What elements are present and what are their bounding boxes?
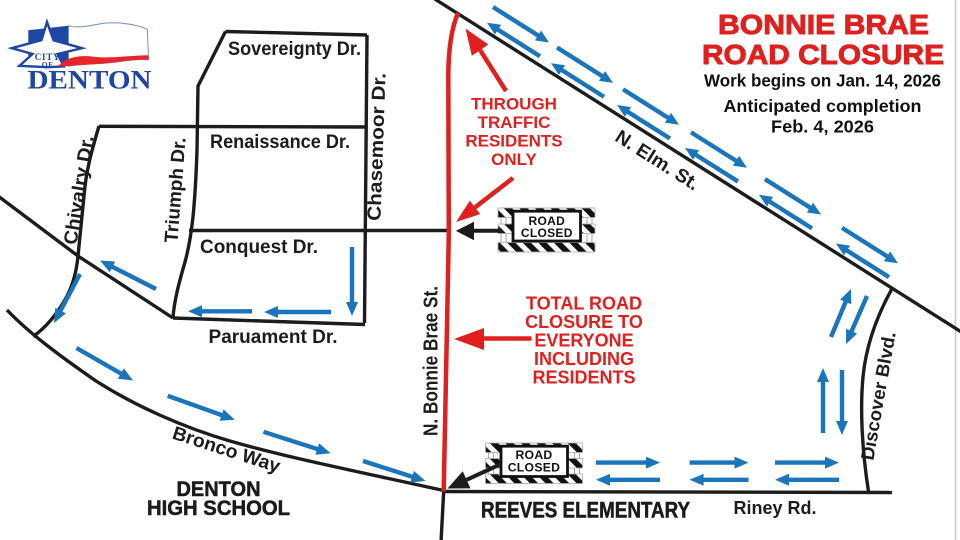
svg-text:Paruament Dr.: Paruament Dr. <box>209 327 338 348</box>
svg-text:HIGH SCHOOL: HIGH SCHOOL <box>147 496 290 520</box>
svg-text:CLOSED: CLOSED <box>508 460 561 474</box>
svg-text:EVERYONE: EVERYONE <box>534 331 633 351</box>
svg-text:Conquest Dr.: Conquest Dr. <box>200 237 318 258</box>
svg-text:Feb. 4, 2026: Feb. 4, 2026 <box>771 117 874 137</box>
svg-text:TRAFFIC: TRAFFIC <box>478 113 551 132</box>
svg-text:ONLY: ONLY <box>491 150 537 169</box>
svg-text:BONNIE BRAE: BONNIE BRAE <box>718 9 929 40</box>
svg-text:Work begins on Jan. 14, 2026: Work begins on Jan. 14, 2026 <box>704 71 941 91</box>
svg-text:CLOSURE TO: CLOSURE TO <box>525 312 643 332</box>
svg-text:RESIDENTS: RESIDENTS <box>465 132 562 151</box>
svg-text:ROAD CLOSURE: ROAD CLOSURE <box>702 39 944 70</box>
svg-text:THROUGH: THROUGH <box>471 95 557 114</box>
svg-text:Riney Rd.: Riney Rd. <box>734 498 817 518</box>
svg-text:Sovereignty Dr.: Sovereignty Dr. <box>228 39 361 60</box>
svg-text:RESIDENTS: RESIDENTS <box>532 368 635 388</box>
svg-text:Anticipated completion: Anticipated completion <box>724 96 922 116</box>
svg-text:CLOSED: CLOSED <box>521 226 573 240</box>
svg-text:TOTAL ROAD: TOTAL ROAD <box>526 294 642 314</box>
svg-text:INCLUDING: INCLUDING <box>534 349 634 369</box>
svg-text:REEVES ELEMENTARY: REEVES ELEMENTARY <box>481 498 690 523</box>
svg-text:Renaissance Dr.: Renaissance Dr. <box>210 132 350 153</box>
svg-text:DENTON: DENTON <box>28 65 152 95</box>
svg-text:N. Bonnie Brae St.: N. Bonnie Brae St. <box>421 286 443 436</box>
